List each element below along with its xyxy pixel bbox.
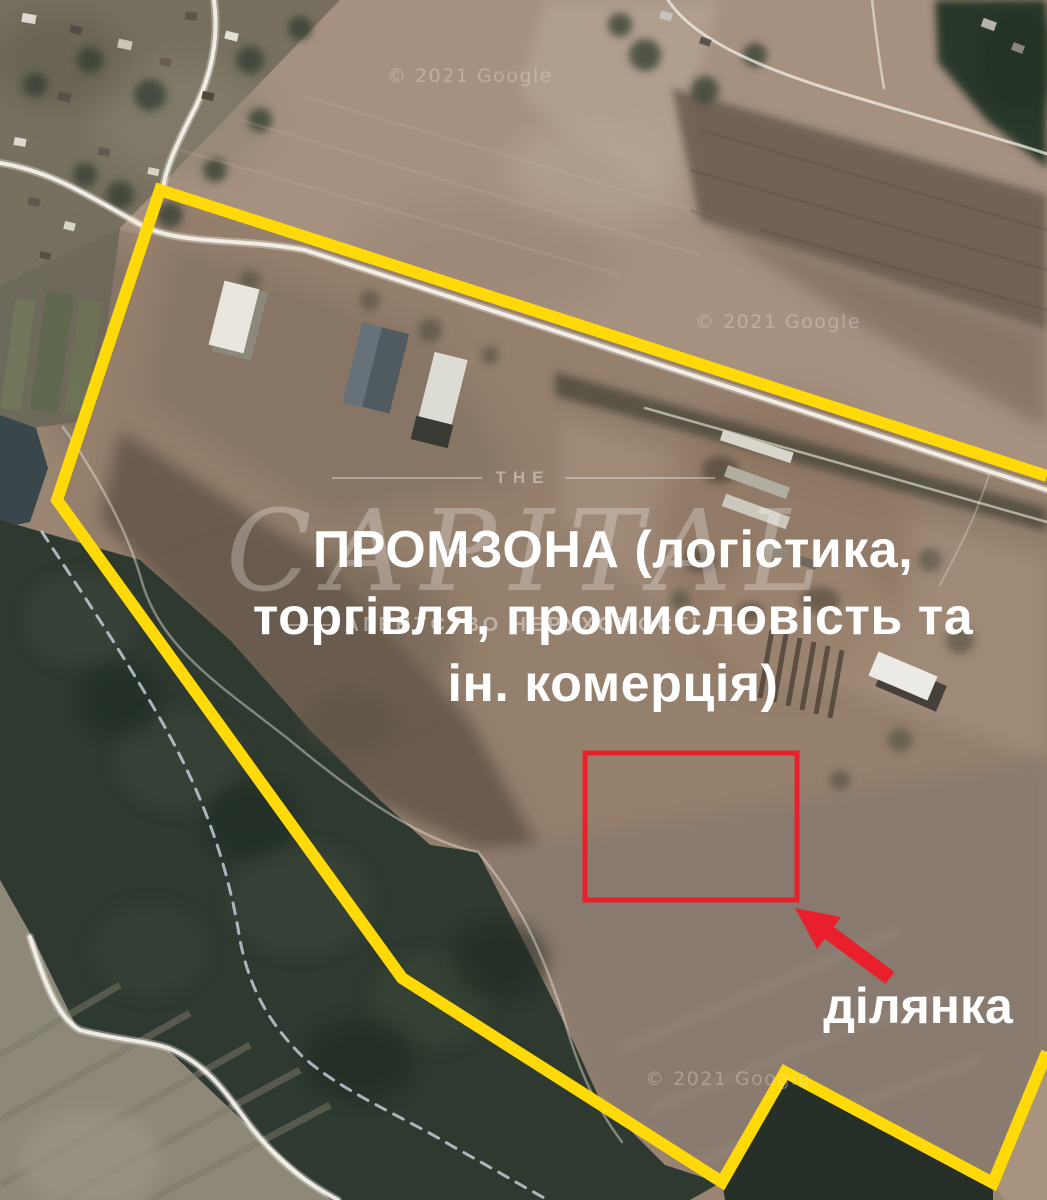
terrain-layer — [0, 0, 1047, 1200]
satellite-imagery — [0, 0, 1047, 1200]
map-canvas: THE CAPITAL АГЕНТСТВО НЕРУХОМОСТІ ПРОМЗО… — [0, 0, 1047, 1200]
